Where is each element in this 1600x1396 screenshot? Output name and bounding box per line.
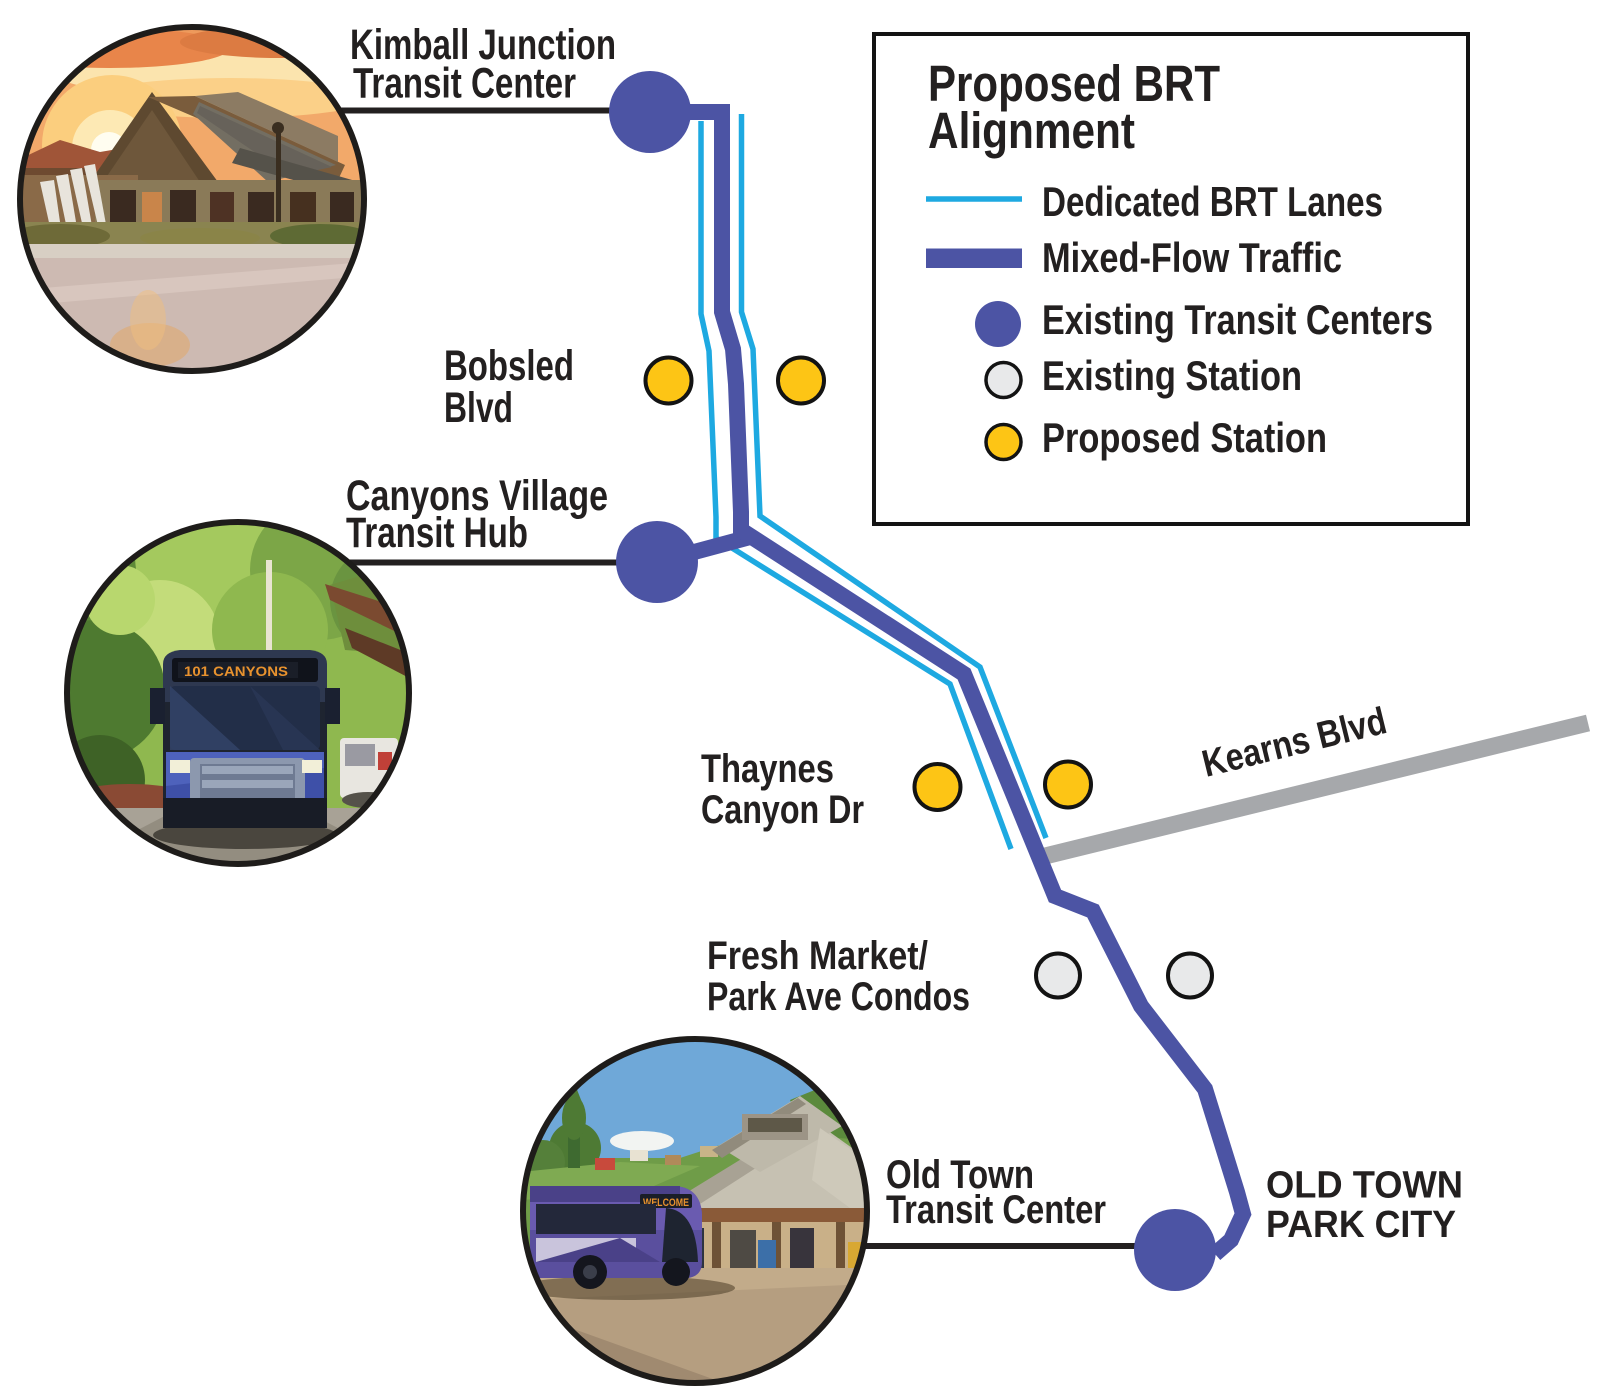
svg-text:Fresh Market/: Fresh Market/ xyxy=(707,934,928,978)
svg-text:OLD TOWN: OLD TOWN xyxy=(1266,1165,1463,1207)
svg-text:Alignment: Alignment xyxy=(928,102,1135,159)
svg-text:Proposed Station: Proposed Station xyxy=(1042,414,1327,461)
svg-text:Existing Transit Centers: Existing Transit Centers xyxy=(1042,296,1433,343)
svg-text:Transit Hub: Transit Hub xyxy=(346,509,528,557)
svg-text:Mixed-Flow Traffic: Mixed-Flow Traffic xyxy=(1042,234,1342,281)
svg-text:Bobsled: Bobsled xyxy=(444,342,574,390)
svg-text:Transit Center: Transit Center xyxy=(886,1188,1106,1232)
svg-text:Blvd: Blvd xyxy=(444,384,513,432)
svg-text:Transit Center: Transit Center xyxy=(353,60,576,108)
svg-text:Thaynes: Thaynes xyxy=(701,747,834,791)
svg-text:PARK CITY: PARK CITY xyxy=(1266,1204,1456,1246)
svg-text:Park Ave Condos: Park Ave Condos xyxy=(707,975,970,1019)
svg-text:Canyon Dr: Canyon Dr xyxy=(701,788,864,832)
svg-text:Dedicated BRT Lanes: Dedicated BRT Lanes xyxy=(1042,178,1383,225)
svg-text:Existing Station: Existing Station xyxy=(1042,352,1302,399)
svg-text:101 CANYONS: 101 CANYONS xyxy=(184,663,288,679)
